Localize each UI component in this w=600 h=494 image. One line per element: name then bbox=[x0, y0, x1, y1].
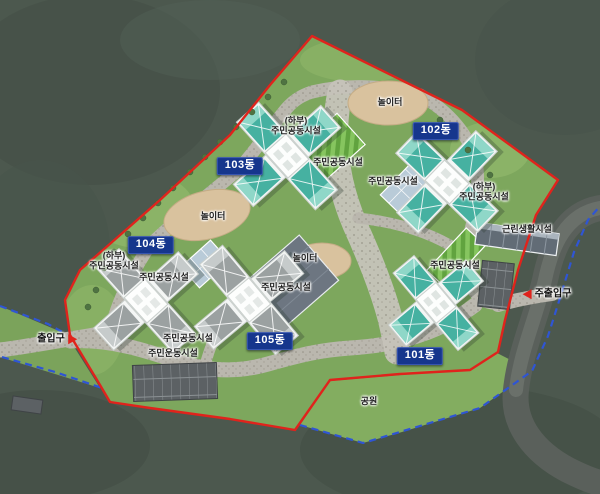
site-plan-canvas bbox=[0, 0, 600, 494]
site-plan: 103동 102동 104동 105동 101동 (하부) 주민공동시설 주민공… bbox=[0, 0, 600, 494]
